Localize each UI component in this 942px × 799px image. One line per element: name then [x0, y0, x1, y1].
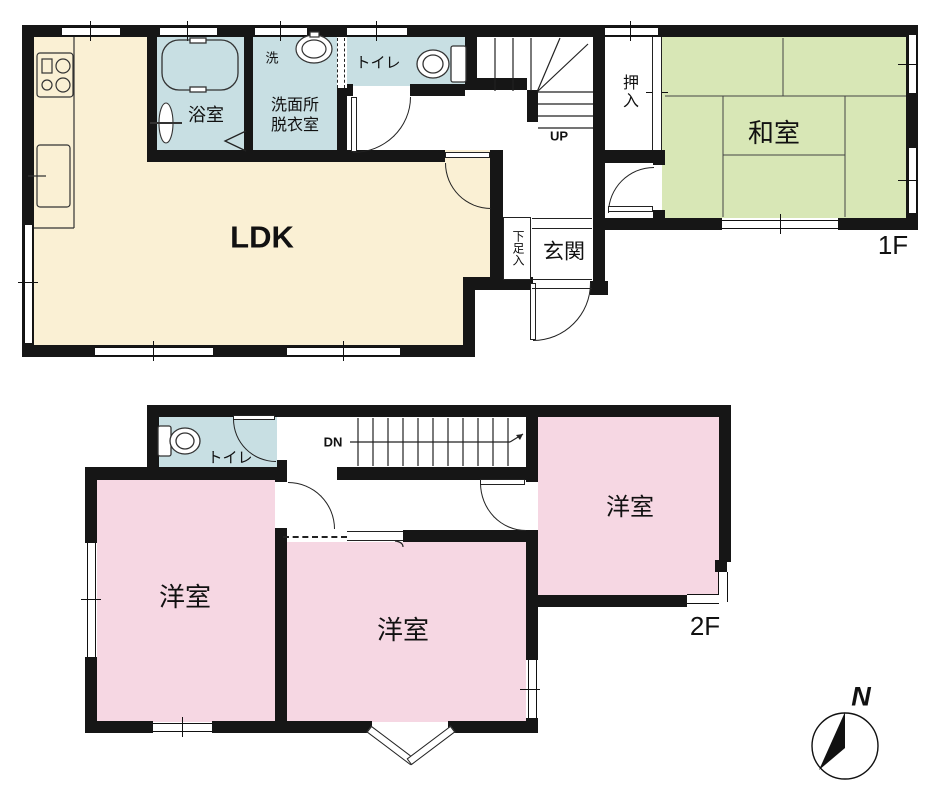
room-bath — [157, 37, 244, 150]
room-label-washroom-1: 洗面所 — [271, 98, 319, 114]
wall-segment — [275, 528, 287, 722]
floor-label-1f: 1F — [878, 232, 908, 258]
door-arc-entrance — [533, 283, 591, 341]
window-tick — [182, 717, 183, 737]
door-leaf-toilet-2f — [233, 415, 275, 420]
window-tick — [187, 21, 188, 41]
room-label-toilet-2f: トイレ — [207, 451, 252, 466]
window-tick — [898, 64, 918, 65]
label-stairs-down: DN — [324, 436, 343, 449]
window-tick — [81, 599, 101, 600]
wall-segment — [477, 78, 527, 90]
wall-segment — [22, 345, 475, 357]
sliding-door-2f — [347, 531, 403, 541]
window-tick — [153, 341, 154, 361]
accordion-door — [337, 38, 345, 88]
window-tick — [280, 21, 281, 41]
room-label-western-right: 洋室 — [606, 496, 654, 520]
door-arc-toilet-1f — [353, 97, 411, 153]
window-tick — [343, 341, 344, 361]
wall-segment — [147, 37, 157, 162]
label-laundry: 洗 — [265, 52, 278, 65]
compass-icon — [812, 712, 878, 779]
window-tick — [376, 21, 377, 41]
entrance-step-line — [532, 288, 592, 289]
wall-segment — [212, 721, 357, 733]
window — [605, 27, 658, 36]
wall-segment — [85, 467, 97, 543]
stairs-2f — [350, 418, 523, 466]
room-label-toilet-1f: トイレ — [355, 56, 400, 71]
wall-segment — [719, 405, 731, 562]
wall-segment — [403, 530, 526, 542]
wall-segment — [462, 721, 538, 733]
floor-plan: LDK 浴室 洗面所 脱衣室 洗 トイレ UP 押入 和室 下足入 玄関 1F … — [0, 0, 942, 799]
wall-segment — [147, 150, 445, 162]
wall-segment — [410, 84, 465, 96]
wall-segment — [275, 530, 283, 542]
label-stairs-up: UP — [550, 130, 568, 143]
window — [24, 225, 33, 343]
window-tick — [630, 21, 631, 41]
corner-window — [687, 594, 719, 604]
room-label-western-center: 洋室 — [377, 617, 429, 643]
room-label-ldk: LDK — [230, 222, 294, 253]
room-ldk-main — [34, 150, 490, 283]
wall-segment — [527, 90, 538, 122]
wall-segment — [277, 460, 287, 467]
wall-segment — [275, 467, 287, 482]
door-arc-western-right — [480, 483, 526, 531]
wall-segment — [526, 530, 538, 660]
entrance-step-line — [532, 279, 592, 280]
wall-segment — [85, 721, 153, 733]
door-leaf-toilet-1f — [351, 97, 357, 152]
room-ldk-kitchen-strip — [34, 37, 147, 162]
door-leaf-japanese-room — [608, 206, 653, 212]
window-tick — [90, 21, 91, 41]
wall-segment — [653, 150, 665, 165]
window — [160, 27, 217, 36]
wall-segment — [85, 467, 287, 480]
window-tick — [18, 282, 38, 283]
window — [62, 27, 120, 36]
wall-segment — [715, 560, 727, 572]
corner-window — [718, 572, 728, 602]
wall-segment — [526, 405, 538, 482]
door-leaf-western-right — [480, 479, 525, 485]
wall-segment — [490, 150, 503, 283]
room-label-bath: 浴室 — [188, 106, 224, 124]
compass-north-label: N — [851, 684, 871, 711]
floor-label-2f: 2F — [690, 613, 720, 639]
window — [255, 27, 307, 36]
window — [87, 543, 96, 657]
room-label-washroom-2: 脱衣室 — [271, 118, 319, 134]
door-arc-western-left — [288, 482, 335, 529]
wall-segment — [838, 218, 918, 230]
wall-segment — [147, 405, 159, 470]
room-label-shoe-cabinet: 下足入 — [512, 230, 524, 266]
window — [347, 27, 407, 36]
room-ldk-lower — [34, 283, 463, 345]
room-label-closet: 押入 — [620, 74, 636, 110]
door-leaf-entrance — [530, 283, 536, 340]
wall-segment — [538, 595, 687, 607]
window-tick — [898, 180, 918, 181]
window-tick — [780, 214, 781, 234]
room-label-western-left: 洋室 — [159, 584, 211, 610]
sliding-door-track — [283, 536, 347, 538]
wall-segment — [465, 25, 477, 90]
entrance-step-line — [532, 228, 592, 229]
window-tick — [520, 689, 540, 690]
wall-segment — [347, 84, 353, 96]
bay-window-right — [407, 726, 456, 765]
room-label-entrance: 玄関 — [543, 242, 585, 263]
door-leaf-ldk — [445, 152, 490, 158]
closet-sliding-door — [652, 37, 662, 150]
window — [95, 347, 213, 356]
wall-segment — [337, 88, 347, 162]
wall-segment — [244, 37, 253, 150]
room-label-japanese: 和室 — [748, 120, 800, 146]
entrance-step-line — [532, 218, 592, 219]
wall-segment — [593, 218, 722, 230]
